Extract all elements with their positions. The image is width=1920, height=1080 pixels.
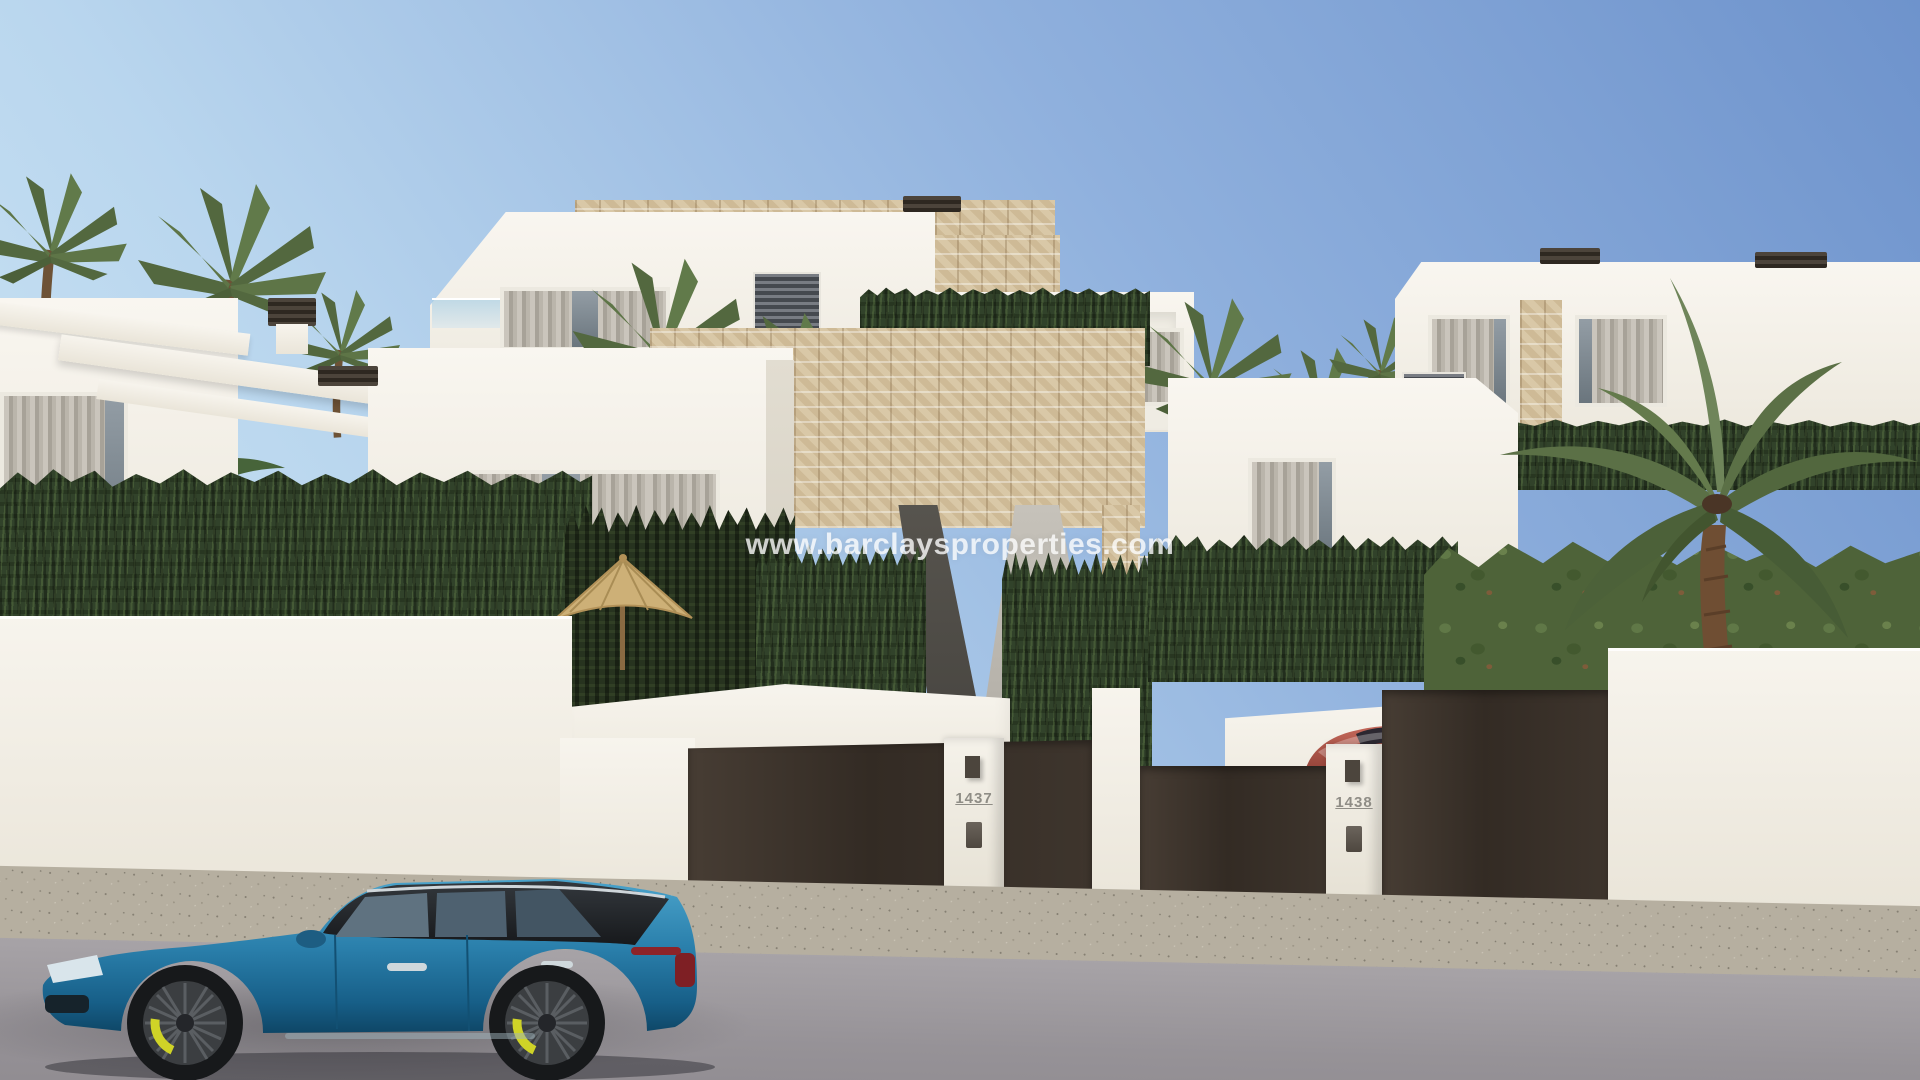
- tail-light: [675, 953, 695, 987]
- door-handle-front: [387, 963, 427, 971]
- gate-far-right: [1382, 690, 1610, 908]
- street-wall-mid: [1092, 688, 1140, 908]
- mail-slot-icon: [1345, 760, 1360, 782]
- front-wheel: [127, 965, 243, 1080]
- intercom-icon[interactable]: [966, 822, 982, 848]
- street-wall-right: [1608, 648, 1920, 908]
- mail-slot-icon: [965, 756, 980, 778]
- intercom-icon[interactable]: [1346, 826, 1362, 852]
- front-intake: [45, 995, 89, 1013]
- house-number-right: 1438: [1326, 794, 1382, 811]
- chimney-cap-villa-a: [318, 366, 378, 386]
- gate-pillar-1437: 1437: [944, 738, 1004, 908]
- car-window-mid: [435, 891, 507, 937]
- rocker-chrome: [285, 1033, 535, 1039]
- blue-sports-car: [35, 835, 715, 1080]
- gate-pillar-1438: 1438: [1326, 744, 1382, 908]
- tail-light-strip: [631, 947, 681, 955]
- watermark-text: www.barclaysproperties.com: [0, 528, 1920, 568]
- villa-development-render: 1437 1438: [0, 0, 1920, 1080]
- roof-vent-cap: [903, 196, 961, 212]
- driveway-gate-right: [1140, 766, 1334, 908]
- house-number-left: 1437: [944, 790, 1004, 807]
- rear-wheel: [489, 965, 605, 1080]
- chimney-cap-left: [268, 298, 316, 326]
- side-mirror: [296, 930, 326, 948]
- chimney-body-left: [276, 324, 308, 354]
